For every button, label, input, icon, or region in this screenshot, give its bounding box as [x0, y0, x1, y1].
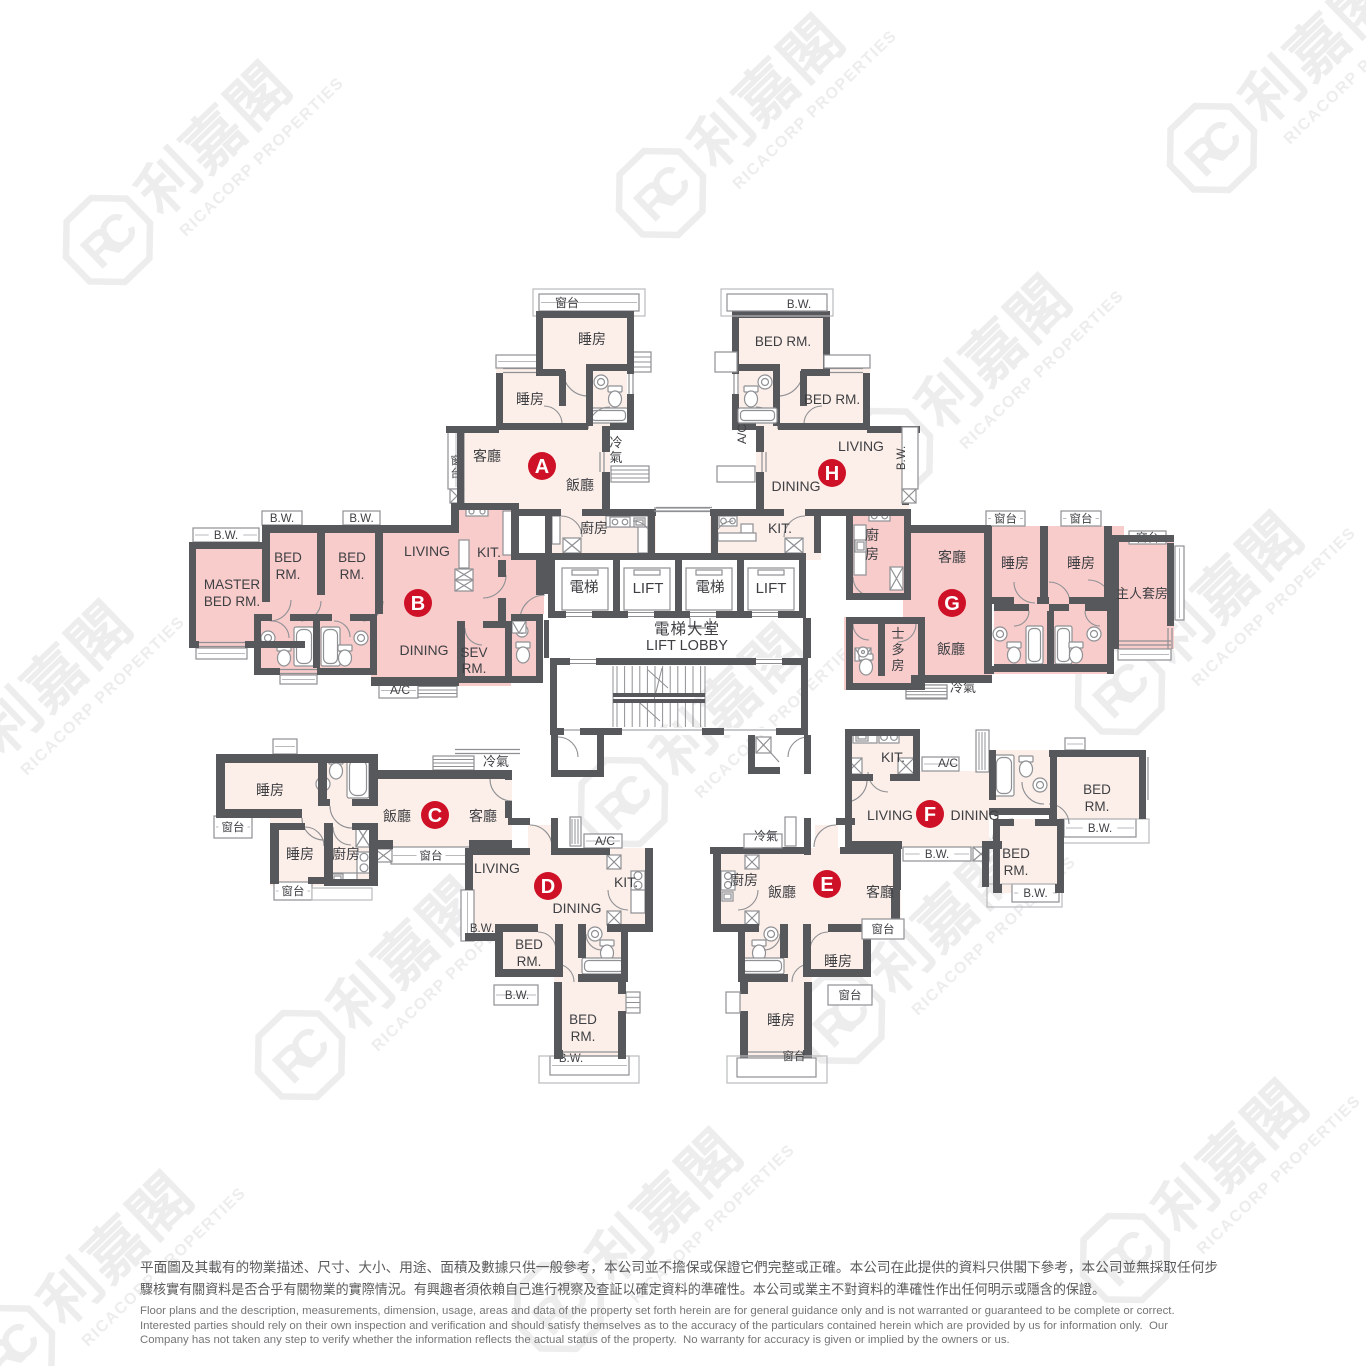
svg-text:睡房: 睡房 [256, 782, 284, 798]
svg-text:平面圖及其載有的物業描述、尺寸、大小、用途、面積及數據只供一: 平面圖及其載有的物業描述、尺寸、大小、用途、面積及數據只供一般參考，本公司並不擔… [140, 1259, 1218, 1275]
svg-text:多: 多 [891, 642, 904, 657]
svg-text:窗台: 窗台 [420, 849, 443, 863]
svg-text:窗台: 窗台 [555, 295, 579, 310]
svg-text:LIVING: LIVING [404, 543, 450, 559]
svg-text:電梯: 電梯 [696, 579, 725, 596]
svg-text:F: F [924, 804, 936, 826]
svg-text:KIT.: KIT. [881, 749, 905, 765]
svg-text:廚房: 廚房 [332, 846, 360, 862]
svg-text:BED RM.: BED RM. [804, 392, 860, 407]
svg-text:客廳: 客廳 [938, 549, 966, 565]
svg-text:Company has not taken any step: Company has not taken any step to verify… [140, 1334, 1010, 1346]
svg-text:廚: 廚 [865, 527, 879, 543]
svg-text:BED RM.: BED RM. [755, 334, 811, 349]
svg-text:Interested parties should rely: Interested parties should rely on their … [140, 1320, 1168, 1332]
svg-text:客廳: 客廳 [473, 448, 501, 464]
svg-text:KIT.: KIT. [614, 874, 638, 890]
svg-text:DINING: DINING [400, 642, 449, 658]
svg-text:睡房: 睡房 [286, 846, 314, 862]
svg-text:房: 房 [891, 658, 904, 673]
svg-text:B.W.: B.W. [1088, 823, 1112, 835]
svg-text:KIT.: KIT. [768, 520, 792, 536]
svg-text:窗台: 窗台 [1070, 512, 1093, 526]
svg-text:B.W.: B.W. [787, 299, 811, 311]
svg-text:B.W.: B.W. [896, 446, 908, 470]
svg-text:窗台: 窗台 [872, 922, 895, 936]
svg-text:房: 房 [865, 546, 879, 562]
svg-text:DINING: DINING [951, 807, 1000, 823]
svg-text:士: 士 [891, 626, 904, 641]
svg-text:窗台: 窗台 [994, 512, 1017, 526]
svg-text:睡房: 睡房 [767, 1012, 795, 1028]
svg-text:RM.: RM. [462, 661, 487, 676]
svg-text:BED: BED [515, 937, 543, 952]
svg-text:B.W.: B.W. [349, 513, 373, 525]
svg-text:電梯: 電梯 [570, 579, 599, 596]
svg-text:DINING: DINING [772, 478, 821, 494]
svg-text:B.W.: B.W. [925, 849, 949, 861]
svg-text:C: C [428, 805, 442, 827]
svg-text:RM.: RM. [340, 567, 365, 582]
svg-text:KIT.: KIT. [477, 544, 501, 560]
svg-text:BED RM.: BED RM. [204, 594, 260, 609]
svg-text:窗台: 窗台 [783, 1049, 806, 1063]
svg-text:窗台: 窗台 [282, 884, 305, 898]
svg-text:主人套房: 主人套房 [1116, 586, 1168, 601]
svg-text:BED: BED [274, 550, 302, 565]
svg-text:冷氣: 冷氣 [483, 754, 509, 769]
svg-text:睡房: 睡房 [1001, 555, 1029, 571]
svg-text:飯廳: 飯廳 [768, 884, 796, 900]
svg-text:LIFT: LIFT [756, 580, 787, 597]
svg-text:睡房: 睡房 [516, 391, 544, 407]
svg-text:LIVING: LIVING [474, 860, 520, 876]
svg-text:MASTER: MASTER [204, 577, 261, 592]
svg-text:A/C: A/C [938, 756, 958, 770]
svg-text:SEV: SEV [460, 645, 487, 660]
svg-text:睡房: 睡房 [1067, 555, 1095, 571]
svg-text:飯廳: 飯廳 [566, 477, 594, 493]
svg-text:客廳: 客廳 [469, 808, 497, 824]
svg-text:Floor plans and the descriptio: Floor plans and the description, measure… [140, 1305, 1175, 1317]
svg-text:BED: BED [569, 1012, 597, 1027]
svg-text:RM.: RM. [517, 954, 542, 969]
svg-text:B.W.: B.W. [1023, 888, 1047, 900]
svg-text:LIFT LOBBY: LIFT LOBBY [646, 638, 728, 654]
svg-text:RM.: RM. [1085, 799, 1110, 814]
svg-text:RM.: RM. [1004, 863, 1029, 878]
svg-text:D: D [541, 876, 555, 898]
svg-text:客廳: 客廳 [866, 884, 894, 900]
svg-text:冷氣: 冷氣 [754, 829, 778, 843]
svg-text:RM.: RM. [571, 1029, 596, 1044]
svg-text:睡房: 睡房 [824, 953, 852, 969]
svg-text:B.W.: B.W. [214, 530, 238, 542]
svg-text:A: A [535, 456, 549, 478]
svg-text:睡房: 睡房 [578, 331, 606, 347]
svg-text:廚房: 廚房 [580, 520, 608, 536]
svg-text:LIVING: LIVING [867, 807, 913, 823]
svg-text:飯廳: 飯廳 [383, 808, 411, 824]
svg-text:LIVING: LIVING [838, 438, 884, 454]
svg-text:BED: BED [338, 550, 366, 565]
svg-text:A/C: A/C [595, 834, 615, 848]
svg-text:DINING: DINING [553, 900, 602, 916]
svg-text:廚房: 廚房 [730, 872, 758, 888]
svg-text:A/C: A/C [735, 424, 749, 444]
svg-text:氣: 氣 [609, 450, 622, 465]
svg-text:BED: BED [1083, 782, 1111, 797]
svg-text:B.W.: B.W. [270, 513, 294, 525]
svg-text:冷: 冷 [609, 435, 622, 450]
svg-text:窗台: 窗台 [222, 820, 245, 834]
svg-text:飯廳: 飯廳 [937, 641, 965, 657]
svg-text:B.W.: B.W. [505, 990, 529, 1002]
svg-text:G: G [944, 593, 960, 615]
svg-text:窗台: 窗台 [839, 988, 862, 1002]
svg-text:電梯大堂: 電梯大堂 [654, 620, 720, 638]
svg-text:LIFT: LIFT [633, 580, 664, 597]
svg-text:E: E [820, 874, 833, 896]
svg-text:RM.: RM. [276, 567, 301, 582]
svg-text:H: H [825, 463, 839, 485]
svg-text:驟核實有關資料是否合乎有關物業的實際情況。有興趣者須依賴自己: 驟核實有關資料是否合乎有關物業的實際情況。有興趣者須依賴自己進行視察及查証以確定… [140, 1281, 1105, 1297]
svg-text:B: B [411, 593, 425, 615]
svg-text:BED: BED [1002, 846, 1030, 861]
